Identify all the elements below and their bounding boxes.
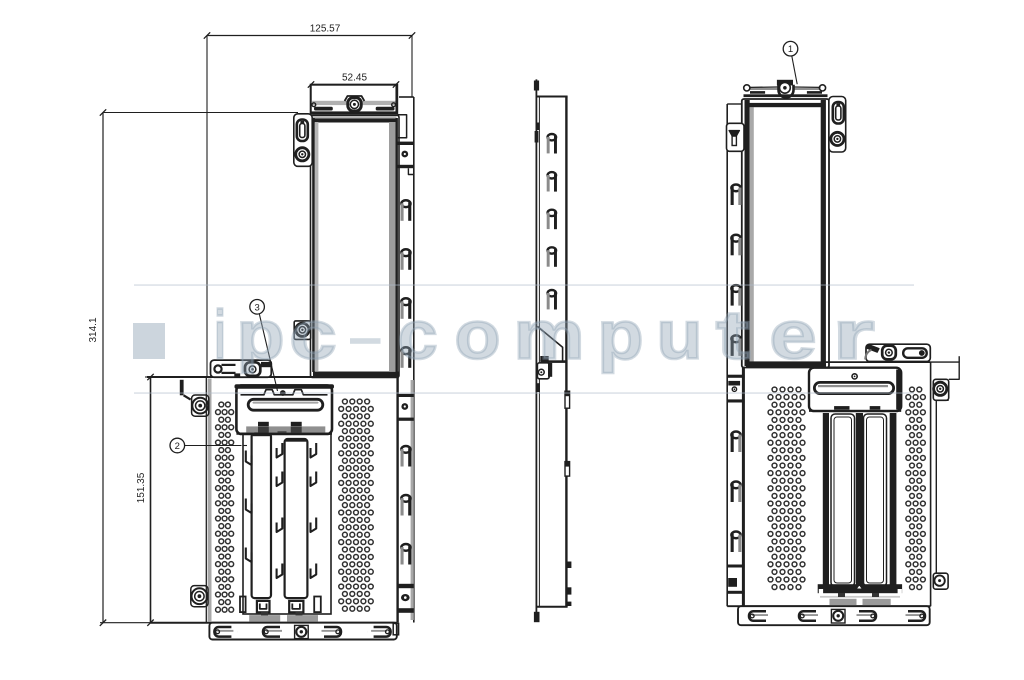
svg-text:1: 1	[788, 44, 793, 55]
svg-text:o: o	[455, 297, 501, 374]
svg-text:r: r	[833, 297, 875, 374]
svg-text:c: c	[398, 297, 438, 374]
svg-text:i: i	[215, 297, 226, 374]
svg-text:151.35: 151.35	[136, 472, 147, 503]
svg-text:m: m	[514, 297, 585, 374]
svg-text:p: p	[237, 297, 285, 374]
svg-text:125.57: 125.57	[310, 24, 341, 35]
svg-text:52.45: 52.45	[342, 73, 367, 84]
svg-text:p: p	[598, 297, 644, 374]
svg-text:e: e	[770, 297, 817, 374]
svg-text:t: t	[716, 297, 750, 374]
svg-text:u: u	[657, 297, 703, 374]
svg-text:2: 2	[175, 441, 180, 452]
svg-text:c: c	[290, 297, 337, 374]
svg-text:314.1: 314.1	[88, 317, 99, 342]
